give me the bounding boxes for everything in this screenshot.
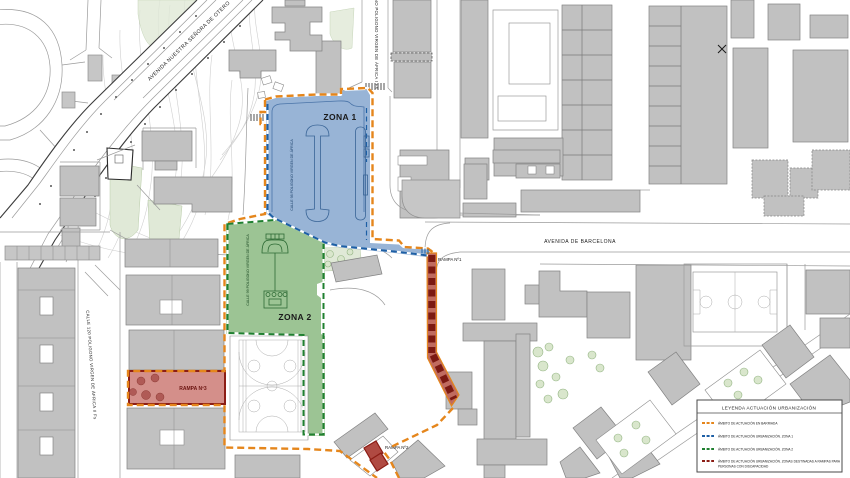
svg-text:ÁMBITO DE ACTUACIÓN URBANIZACI: ÁMBITO DE ACTUACIÓN URBANIZACIÓN. ZONA 2 — [718, 447, 793, 452]
svg-text:ÁMBITO DE ACTUACIÓN URBANIZACI: ÁMBITO DE ACTUACIÓN URBANIZACIÓN. ZONA 1 — [718, 434, 793, 439]
svg-text:RAMPA Nº1: RAMPA Nº1 — [438, 257, 462, 262]
svg-text:RAMPA Nº3: RAMPA Nº3 — [179, 386, 207, 392]
svg-text:ZONA 2: ZONA 2 — [278, 312, 311, 322]
svg-text:AVENIDA DE BARCELONA: AVENIDA DE BARCELONA — [544, 239, 616, 245]
svg-text:ÁMBITO DE ACTUACIÓN EN BARRIAD: ÁMBITO DE ACTUACIÓN EN BARRIADA — [718, 421, 778, 426]
svg-text:CALLE 99 POLIGONO VIRGEN DE ÁF: CALLE 99 POLIGONO VIRGEN DE ÁFRICA — [246, 234, 250, 306]
svg-text:CALLE 98 POLIGONO VIRGEN DE ÁF: CALLE 98 POLIGONO VIRGEN DE ÁFRICA — [290, 139, 294, 211]
svg-text:ZONA 1: ZONA 1 — [323, 112, 356, 122]
svg-text:ÁMBITO DE ACTUACIÓN URBANIZACI: ÁMBITO DE ACTUACIÓN URBANIZACIÓN. ZONAS … — [718, 459, 841, 464]
svg-text:RAMPA Nº2: RAMPA Nº2 — [385, 445, 409, 450]
svg-text:CAMINO POLIGONO VIRGEN DE ÁFRI: CAMINO POLIGONO VIRGEN DE ÁFRICA I Fs — [374, 0, 379, 89]
svg-text:LEYENDA ACTUACIÓN URBANIZACIÓN: LEYENDA ACTUACIÓN URBANIZACIÓN — [722, 405, 816, 411]
svg-text:PERSONAS CON DISCAPACIDAD: PERSONAS CON DISCAPACIDAD — [718, 465, 769, 469]
